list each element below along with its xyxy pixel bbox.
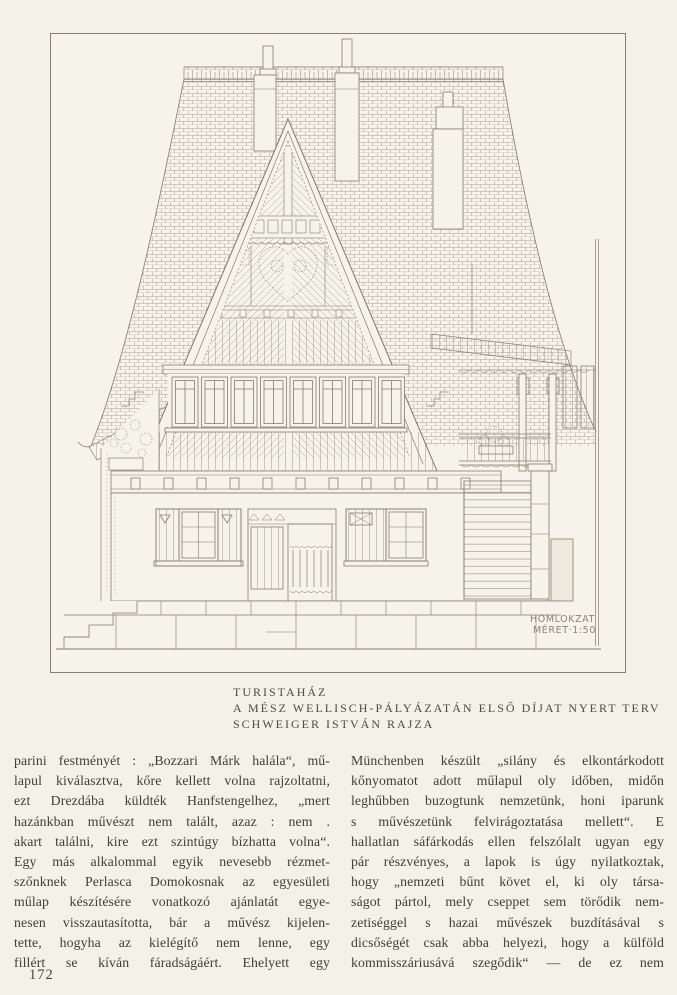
text-line: ezt Drezdába küldték Hanfstengelhez, „me… [14, 791, 330, 811]
gable-window-row [249, 216, 327, 238]
text-line: tette, hogyha az kielégítő nem lenne, eg… [14, 933, 330, 953]
porch-stairs [464, 481, 531, 599]
text-line: műlap készítésére vonatkozó ajánlatát eg… [14, 892, 330, 912]
text-line: fillért se kíván fáradságáért. Ehelyett … [14, 953, 330, 973]
text-line: zetiséggel s hazai művészek buzdításával… [351, 913, 664, 933]
left-window [154, 509, 243, 566]
book-page: HOMLOKZAT MÉRET·1:50 TURISTAHÁZA MÉSZ WE… [0, 0, 677, 995]
balcony-beam-band [111, 471, 501, 493]
text-line: akart találni, kire ezt szintúgy bízhatt… [14, 832, 330, 852]
plan-label: HOMLOKZAT MÉRET·1:50 [530, 614, 596, 636]
text-line: ságot pártol, mely cseppet sem törődik n… [351, 892, 664, 912]
house-elevation-drawing: HOMLOKZAT MÉRET·1:50 [51, 34, 625, 672]
text-line: Münchenben készült „silány és elkontárko… [351, 751, 664, 771]
stair-pier [528, 464, 552, 599]
text-line: leghűbben buzogtunk nemzetünk, honi ipar… [351, 791, 664, 811]
window-ribbon [139, 365, 437, 470]
plan-label-line2: MÉRET·1:50 [533, 624, 596, 636]
text-line: hazánkban művészt nem talált, azaz : nem… [14, 812, 330, 832]
porch-railing [459, 434, 551, 467]
text-line: pár részvényes, a lapok is úgy nyilatkoz… [351, 852, 664, 872]
figure-frame: HOMLOKZAT MÉRET·1:50 [50, 33, 626, 673]
text-line: A MÉSZ WELLISCH-PÁLYÁZATÁN ELSŐ DÍJAT NY… [233, 700, 661, 716]
chimney-middle [335, 39, 359, 181]
stone-base [56, 601, 601, 649]
text-line: nesen visszautasította, bár a művész kij… [14, 913, 330, 933]
text-line: Egy más alkalommal egyik nevesebb rézmet… [14, 852, 330, 872]
text-line: kőnyomatot adott műlapul oly időben, mid… [351, 771, 664, 791]
text-line: SCHWEIGER ISTVÁN RAJZA [233, 716, 661, 732]
text-line: kommisszáriusává szegődik“ — de ez nem [351, 953, 664, 973]
text-line: parini festményét : „Bozzari Márk halála… [14, 751, 330, 771]
text-line: dicsőségét csak abba helyezi, hogy a kül… [351, 933, 664, 953]
text-line: hogy „nemzeti bűnt követ el, ki oly társ… [351, 872, 664, 892]
figure-caption: TURISTAHÁZA MÉSZ WELLISCH-PÁLYÁZATÁN ELS… [233, 684, 661, 732]
text-line: hallatlan sáfárkodás ellen felszólalt ug… [351, 832, 664, 852]
text-line: szőnknek Perlasca Domokosnak az egyesüle… [14, 872, 330, 892]
text-line: s művészetünk felvirágoztatása mellett“.… [351, 812, 664, 832]
plan-label-line1: HOMLOKZAT [530, 614, 595, 625]
page-number: 172 [29, 967, 54, 984]
under-porch-door [551, 539, 573, 601]
article-left-column: parini festményét : „Bozzari Márk halála… [14, 751, 330, 973]
text-line: TURISTAHÁZ [233, 684, 661, 700]
article-right-column: Münchenben készült „silány és elkontárko… [351, 751, 664, 973]
chimney-left [254, 46, 276, 151]
text-line: lapul kiválasztva, kőre kellett volna ra… [14, 771, 330, 791]
